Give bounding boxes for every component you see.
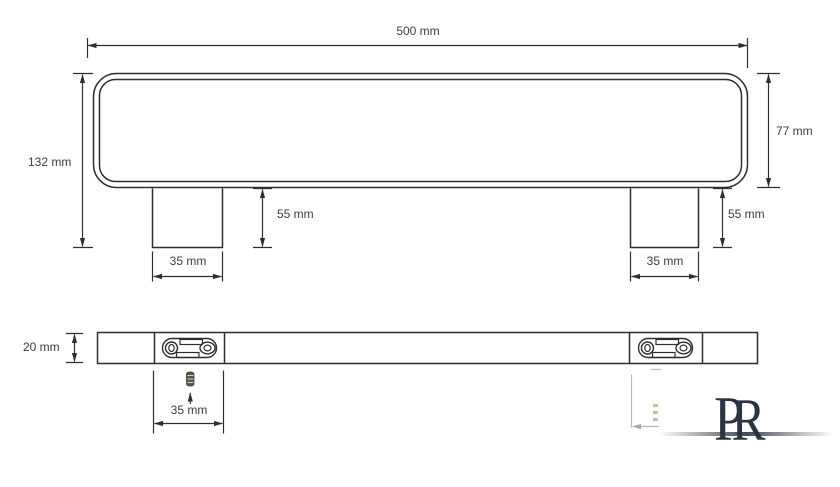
left-leg-outline [153, 189, 223, 248]
screw-icon [187, 372, 195, 386]
logo-letter-r: R [732, 390, 766, 450]
faded-screw-dot [653, 418, 658, 421]
plate-slot-bottom [177, 353, 200, 358]
plate-stadium [163, 339, 217, 358]
bar-outline [98, 333, 758, 364]
technical-drawing-page: 500 mm 132 mm 77 mm 55 mm 55 mm 35 mm 35… [0, 0, 840, 487]
plate-hole-left-inner [169, 345, 174, 352]
mounting-plate-right [639, 339, 693, 358]
plate-hole-left-inner [645, 345, 650, 352]
right-leg-outline [631, 189, 699, 248]
plate-hole-left-outer [642, 342, 654, 354]
dim-55-right-label: 55 mm [728, 208, 765, 221]
plate-stadium [639, 339, 693, 358]
dim-35-left-label: 35 mm [154, 255, 222, 268]
side-view-dimension-lines [73, 38, 780, 282]
plate-hole-right-inner [204, 345, 211, 351]
faded-screw-dot [653, 404, 658, 407]
side-view-body [94, 74, 748, 248]
plate-hole-right-inner [680, 345, 687, 351]
plate-slot-top [656, 340, 679, 345]
plate-hole-left-outer [166, 342, 178, 354]
shelf-inner-outline [100, 80, 742, 182]
dim-35-right-label: 35 mm [631, 255, 699, 268]
bottom-view-bar [98, 333, 758, 364]
dim-55-left-label: 55 mm [277, 208, 314, 221]
dim-77-label: 77 mm [776, 125, 813, 138]
brand-logo-monogram: PR [714, 387, 766, 451]
mounting-plate-left [163, 339, 217, 358]
faded-screw-dot [653, 411, 658, 414]
dim-20-label: 20 mm [23, 341, 60, 354]
dim-132-label: 132 mm [28, 156, 71, 169]
dim-35-bottom-label: 35 mm [155, 404, 223, 417]
plate-slot-top [180, 340, 203, 345]
dim-500-label: 500 mm [382, 25, 454, 38]
plate-slot-bottom [653, 353, 676, 358]
shelf-outer-outline [94, 74, 748, 188]
